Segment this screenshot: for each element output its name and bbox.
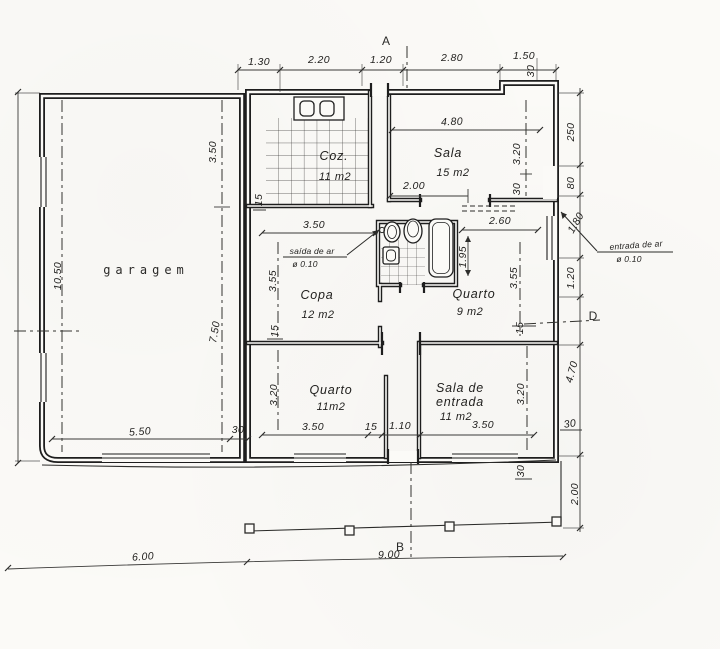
dim-bedroom-small-4: 15 bbox=[514, 322, 526, 334]
room-label-bedroom-small: Quarto bbox=[452, 287, 495, 301]
section-marker-a: A bbox=[382, 34, 390, 48]
dim-living-2: 2.00 bbox=[403, 180, 425, 192]
dim-pantry-2: 3.55 bbox=[267, 270, 279, 292]
dim-corridor-1: 15 bbox=[365, 421, 377, 433]
dim-garage-1: 3.50 bbox=[207, 141, 219, 163]
dim-living-4: 30 bbox=[511, 183, 523, 195]
dim-top-3: 1.20 bbox=[370, 54, 392, 66]
room-label-entry-1: Sala de bbox=[436, 381, 484, 395]
room-area-pantry: 12 m2 bbox=[301, 309, 334, 321]
section-marker-d: D bbox=[589, 309, 598, 323]
porch bbox=[42, 460, 561, 535]
dim-right-wall: 30 bbox=[515, 465, 527, 477]
dim-bedroom-2: 3.20 bbox=[268, 384, 280, 406]
sink-icon bbox=[384, 222, 400, 242]
dim-left-total: 10.50 bbox=[52, 262, 64, 290]
dim-garage-3: 5.50 bbox=[129, 425, 152, 439]
dim-right-6: 30 bbox=[563, 417, 577, 431]
dim-pantry-1: 3.50 bbox=[303, 219, 325, 231]
dim-right-7: 2.00 bbox=[569, 483, 581, 505]
room-area-bedroom-small: 9 m2 bbox=[457, 306, 483, 318]
dim-corridor-2: 1.10 bbox=[389, 420, 411, 432]
air-outlet-label: saída de ar bbox=[290, 246, 335, 256]
room-label-bedroom: Quarto bbox=[309, 383, 352, 397]
room-area-entry: 11 m2 bbox=[440, 411, 472, 423]
dim-bedroom-small-1: 2.60 bbox=[489, 215, 511, 227]
room-label-living: Sala bbox=[434, 146, 462, 160]
room-label-pantry: Copa bbox=[300, 288, 333, 302]
dim-right-1: 250 bbox=[565, 123, 577, 142]
room-area-living: 15 m2 bbox=[436, 167, 469, 179]
room-area-kitchen: 11 m2 bbox=[319, 171, 351, 183]
dim-entry-1: 3.50 bbox=[472, 419, 494, 431]
plan-drawing bbox=[0, 0, 720, 649]
dim-pantry-4: 15 bbox=[269, 325, 281, 337]
dim-bedroom-small-2: 1.95 bbox=[457, 246, 469, 268]
air-outlet-diameter: ø 0.10 bbox=[292, 259, 317, 269]
porch-column bbox=[245, 524, 254, 533]
dim-right-2: 80 bbox=[565, 177, 577, 189]
dim-living-3: 3.20 bbox=[511, 143, 523, 165]
dim-bedroom-small-3: 3.55 bbox=[508, 267, 520, 289]
air-inlet-diameter: ø 0.10 bbox=[616, 254, 641, 264]
dim-garage-4: 30 bbox=[232, 424, 244, 436]
floor-plan-sheet: 1.30 2.20 1.20 2.80 1.50 30 A 250 80 1.8… bbox=[0, 0, 720, 649]
section-marker-b: B bbox=[396, 540, 404, 554]
room-label-entry-2: entrada bbox=[436, 395, 484, 409]
dim-top-1: 1.30 bbox=[248, 56, 270, 68]
dim-top-step: 30 bbox=[525, 65, 537, 77]
room-label-garage: garagem bbox=[103, 263, 189, 277]
dim-top-2: 2.20 bbox=[308, 54, 330, 66]
dim-top-5: 1.50 bbox=[513, 50, 535, 62]
dim-bedroom-1: 3.50 bbox=[302, 421, 324, 433]
dim-right-4: 1.20 bbox=[565, 267, 577, 289]
toilet-icon bbox=[404, 219, 422, 243]
room-area-bedroom: 11m2 bbox=[317, 401, 346, 413]
room-label-kitchen: Coz. bbox=[320, 149, 349, 163]
porch-column bbox=[552, 517, 561, 526]
dim-entry-2: 3.20 bbox=[515, 383, 527, 405]
kitchen-sink bbox=[294, 97, 344, 120]
porch-column bbox=[345, 526, 354, 535]
dim-pantry-3: 15 bbox=[253, 194, 265, 206]
dim-living-1: 4.80 bbox=[441, 116, 463, 129]
dim-bottom-1: 6.00 bbox=[132, 550, 155, 564]
porch-column bbox=[445, 522, 454, 531]
dim-top-4: 2.80 bbox=[441, 52, 463, 64]
